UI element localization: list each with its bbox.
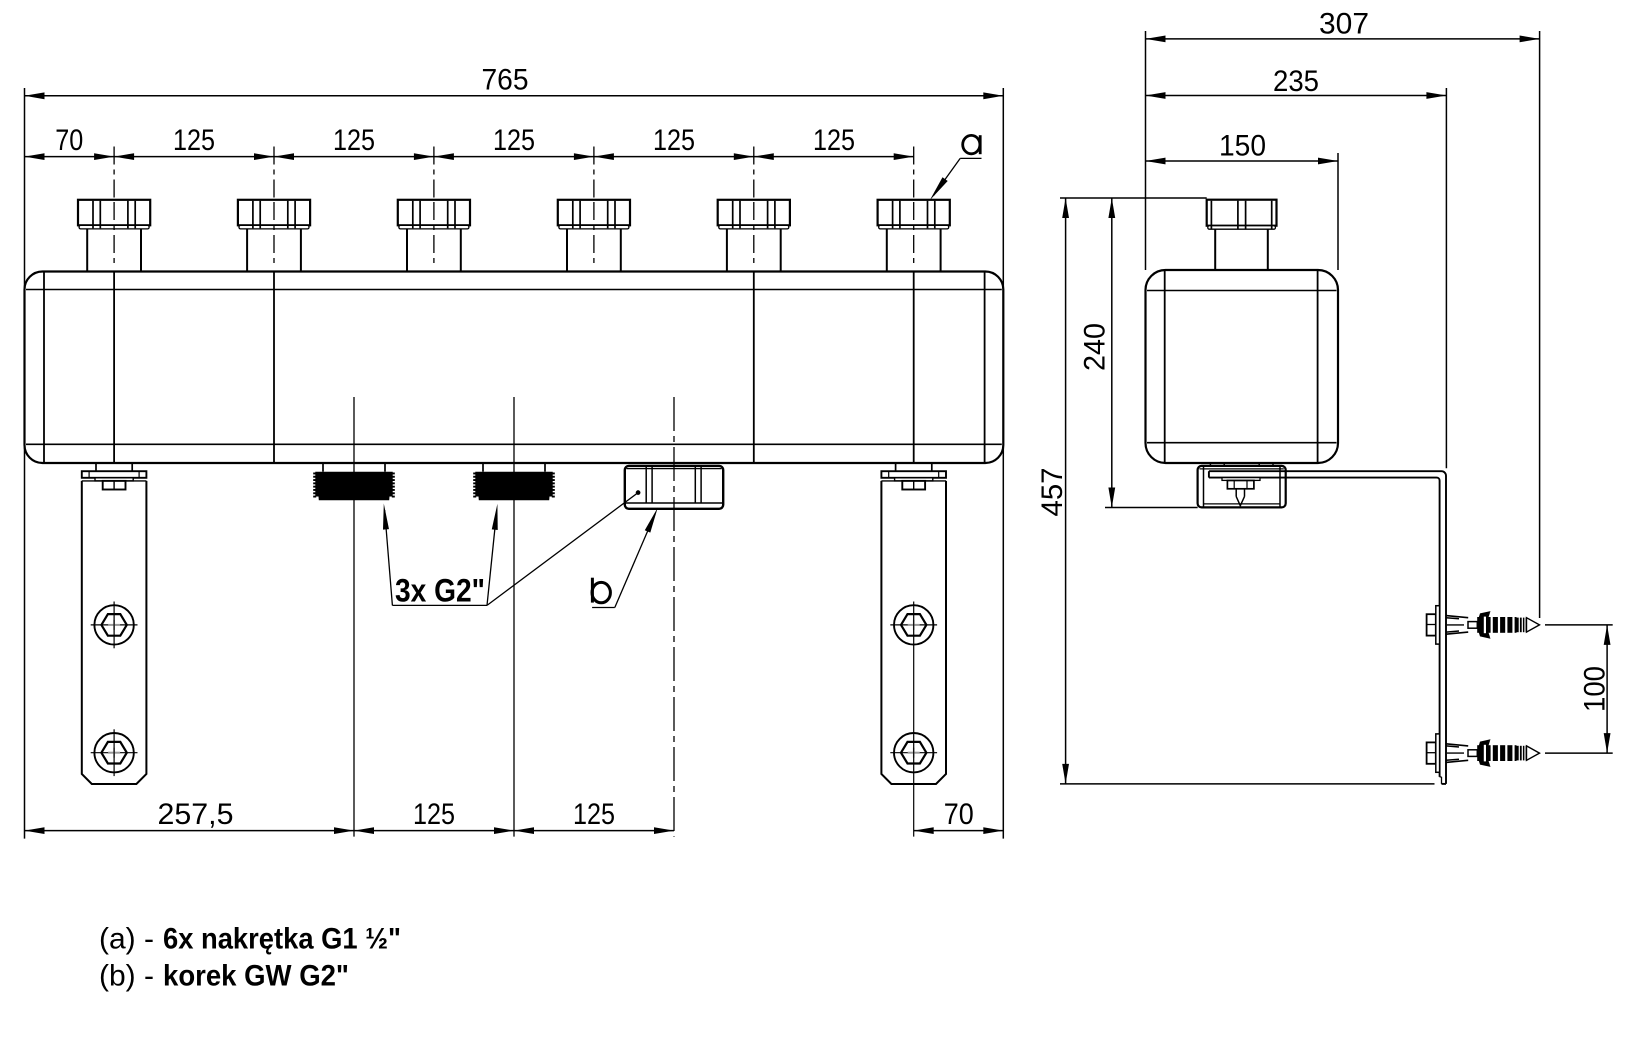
svg-text:6x nakrętka G1 ½": 6x nakrętka G1 ½": [163, 923, 401, 956]
svg-text:150: 150: [1219, 130, 1266, 163]
svg-text:(a) -: (a) -: [99, 923, 154, 956]
svg-text:125: 125: [653, 124, 695, 157]
svg-text:240: 240: [1078, 323, 1111, 371]
svg-text:125: 125: [573, 798, 615, 831]
svg-text:korek GW G2": korek GW G2": [163, 960, 349, 993]
svg-text:765: 765: [482, 63, 529, 96]
svg-text:257,5: 257,5: [158, 798, 234, 831]
svg-text:70: 70: [55, 124, 83, 157]
svg-text:457: 457: [1036, 468, 1069, 517]
svg-text:100: 100: [1578, 666, 1611, 712]
svg-text:307: 307: [1319, 8, 1369, 41]
svg-text:70: 70: [944, 798, 974, 831]
svg-text:3x G2": 3x G2": [395, 573, 485, 609]
svg-text:125: 125: [413, 798, 455, 831]
svg-text:235: 235: [1273, 65, 1319, 98]
svg-text:125: 125: [173, 124, 215, 157]
svg-text:(b) -: (b) -: [99, 960, 154, 993]
svg-text:125: 125: [333, 124, 375, 157]
svg-text:125: 125: [493, 124, 535, 157]
svg-text:125: 125: [813, 124, 855, 157]
